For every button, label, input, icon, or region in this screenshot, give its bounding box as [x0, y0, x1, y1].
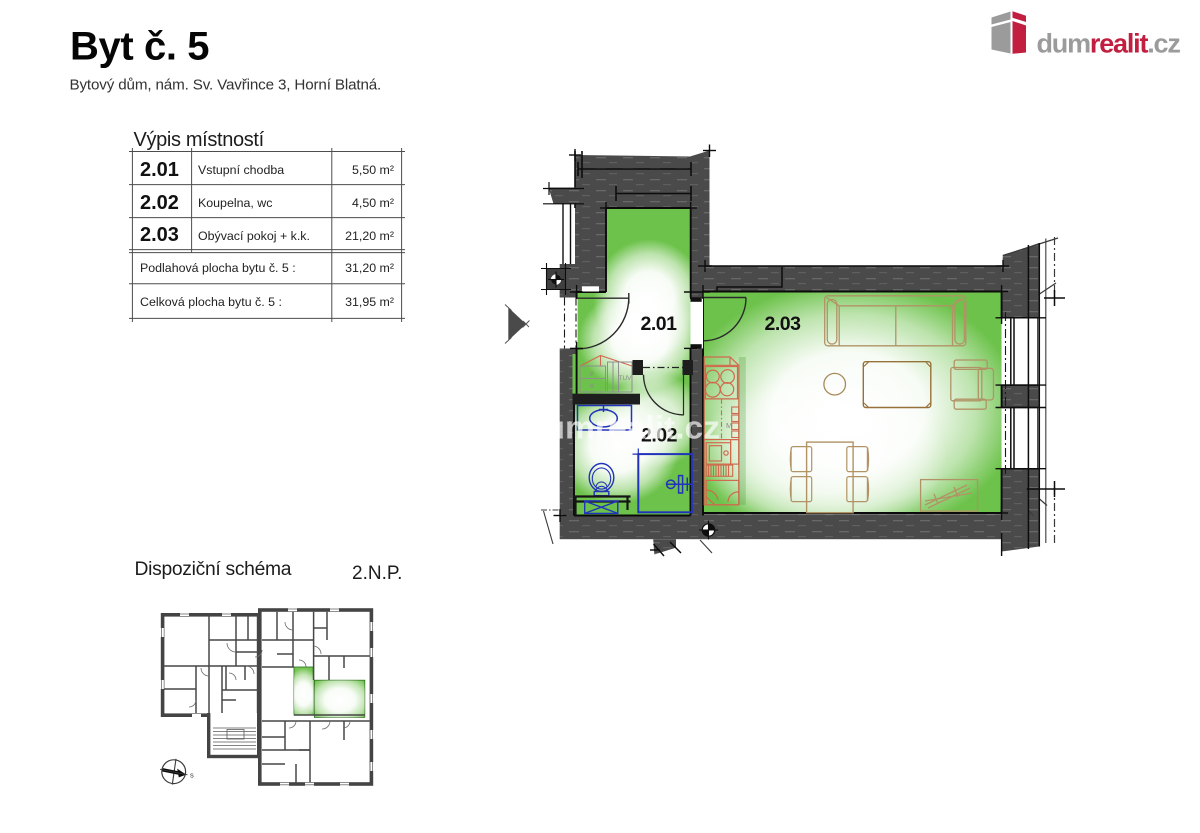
svg-text:TUV: TUV — [619, 375, 633, 382]
svg-text:M: M — [726, 421, 732, 430]
svg-text:21,20 m²: 21,20 m² — [345, 229, 394, 243]
svg-text:Bytový dům, nám. Sv. Vavřince: Bytový dům, nám. Sv. Vavřince 3, Horní B… — [70, 77, 382, 94]
svg-text:Vstupní chodba: Vstupní chodba — [198, 163, 284, 177]
svg-text:Dispoziční schéma: Dispoziční schéma — [135, 559, 292, 580]
svg-text:2.01: 2.01 — [140, 159, 179, 181]
svg-text:2.03: 2.03 — [140, 224, 179, 246]
svg-text:P: P — [590, 371, 594, 378]
svg-text:Výpis místností: Výpis místností — [134, 129, 265, 151]
svg-text:Byt č. 5: Byt č. 5 — [70, 25, 209, 69]
svg-text:dumrealit.cz: dumrealit.cz — [524, 410, 720, 446]
svg-text:2.03: 2.03 — [765, 313, 802, 335]
svg-text:2.01: 2.01 — [641, 313, 678, 335]
svg-text:s: s — [190, 771, 194, 780]
svg-text:31,20 m²: 31,20 m² — [345, 261, 394, 275]
svg-text:2.N.P.: 2.N.P. — [352, 563, 402, 584]
svg-text:31,95 m²: 31,95 m² — [345, 295, 394, 309]
svg-text:K: K — [590, 383, 595, 390]
svg-text:Celková plocha bytu č. 5 :: Celková plocha bytu č. 5 : — [140, 295, 282, 309]
svg-text:4,50 m²: 4,50 m² — [352, 196, 394, 210]
svg-text:Obývací pokoj + k.k.: Obývací pokoj + k.k. — [198, 229, 310, 243]
svg-text:5,50 m²: 5,50 m² — [352, 163, 394, 177]
svg-text:Koupelna, wc: Koupelna, wc — [198, 196, 272, 210]
svg-text:dumrealit.cz: dumrealit.cz — [1037, 29, 1181, 59]
svg-text:2.02: 2.02 — [140, 192, 179, 214]
svg-text:Podlahová plocha bytu č. 5 :: Podlahová plocha bytu č. 5 : — [140, 261, 296, 275]
